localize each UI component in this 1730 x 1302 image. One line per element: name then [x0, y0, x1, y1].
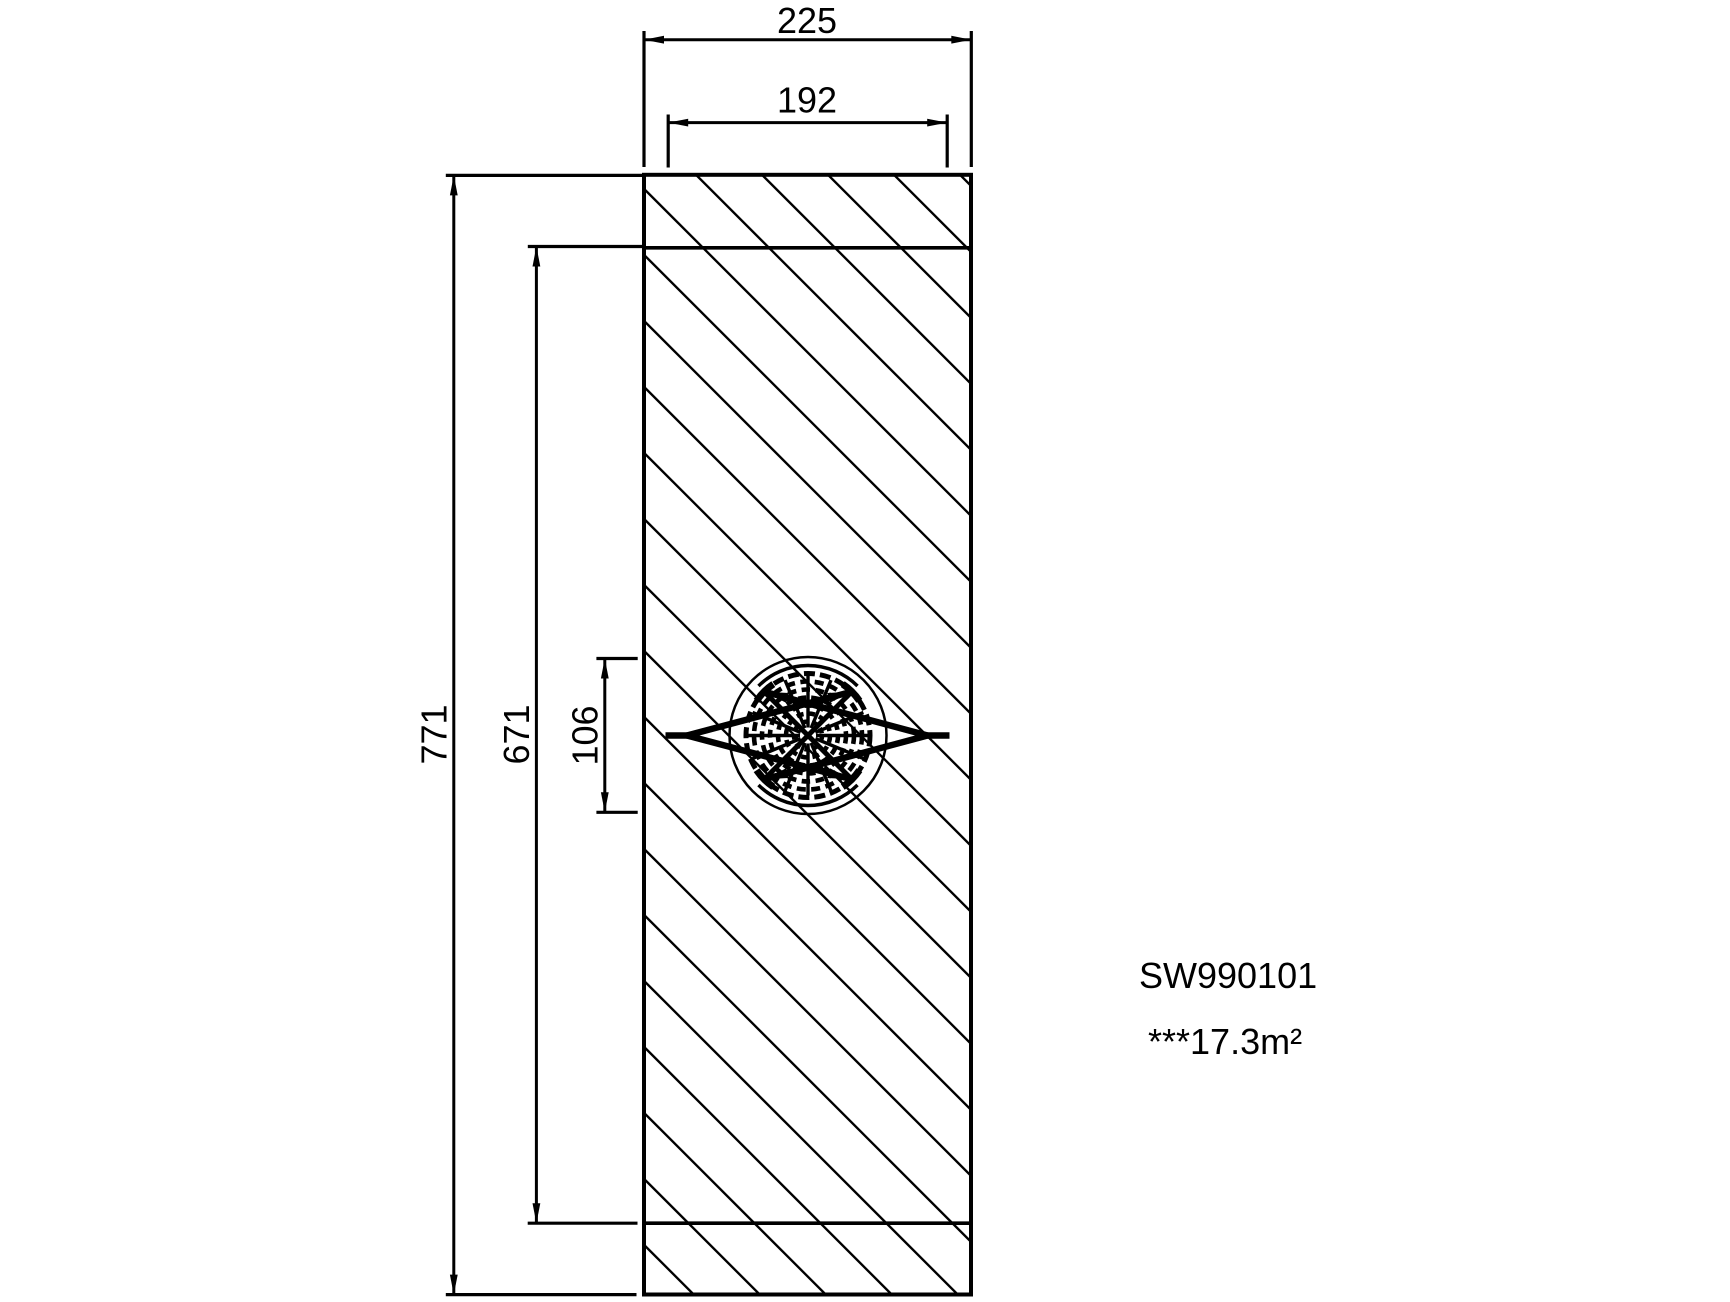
svg-text:SW990101: SW990101: [1139, 955, 1317, 996]
svg-text:106: 106: [565, 705, 606, 765]
svg-text:192: 192: [777, 80, 837, 121]
svg-text:225: 225: [777, 0, 837, 41]
svg-text:771: 771: [414, 704, 455, 764]
svg-text:671: 671: [496, 704, 537, 764]
svg-text:***17.3m²: ***17.3m²: [1148, 1021, 1302, 1062]
